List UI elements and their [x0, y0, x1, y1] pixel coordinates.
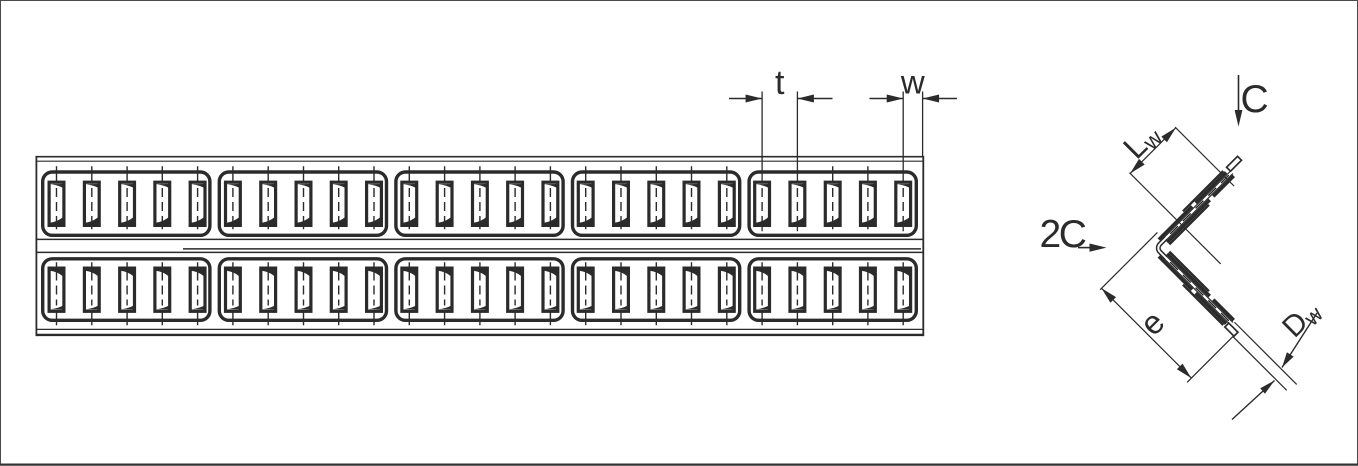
svg-text:2C: 2C — [1040, 213, 1086, 256]
svg-text:t: t — [775, 64, 785, 102]
svg-text:C: C — [1241, 78, 1269, 121]
svg-text:w: w — [900, 64, 925, 101]
